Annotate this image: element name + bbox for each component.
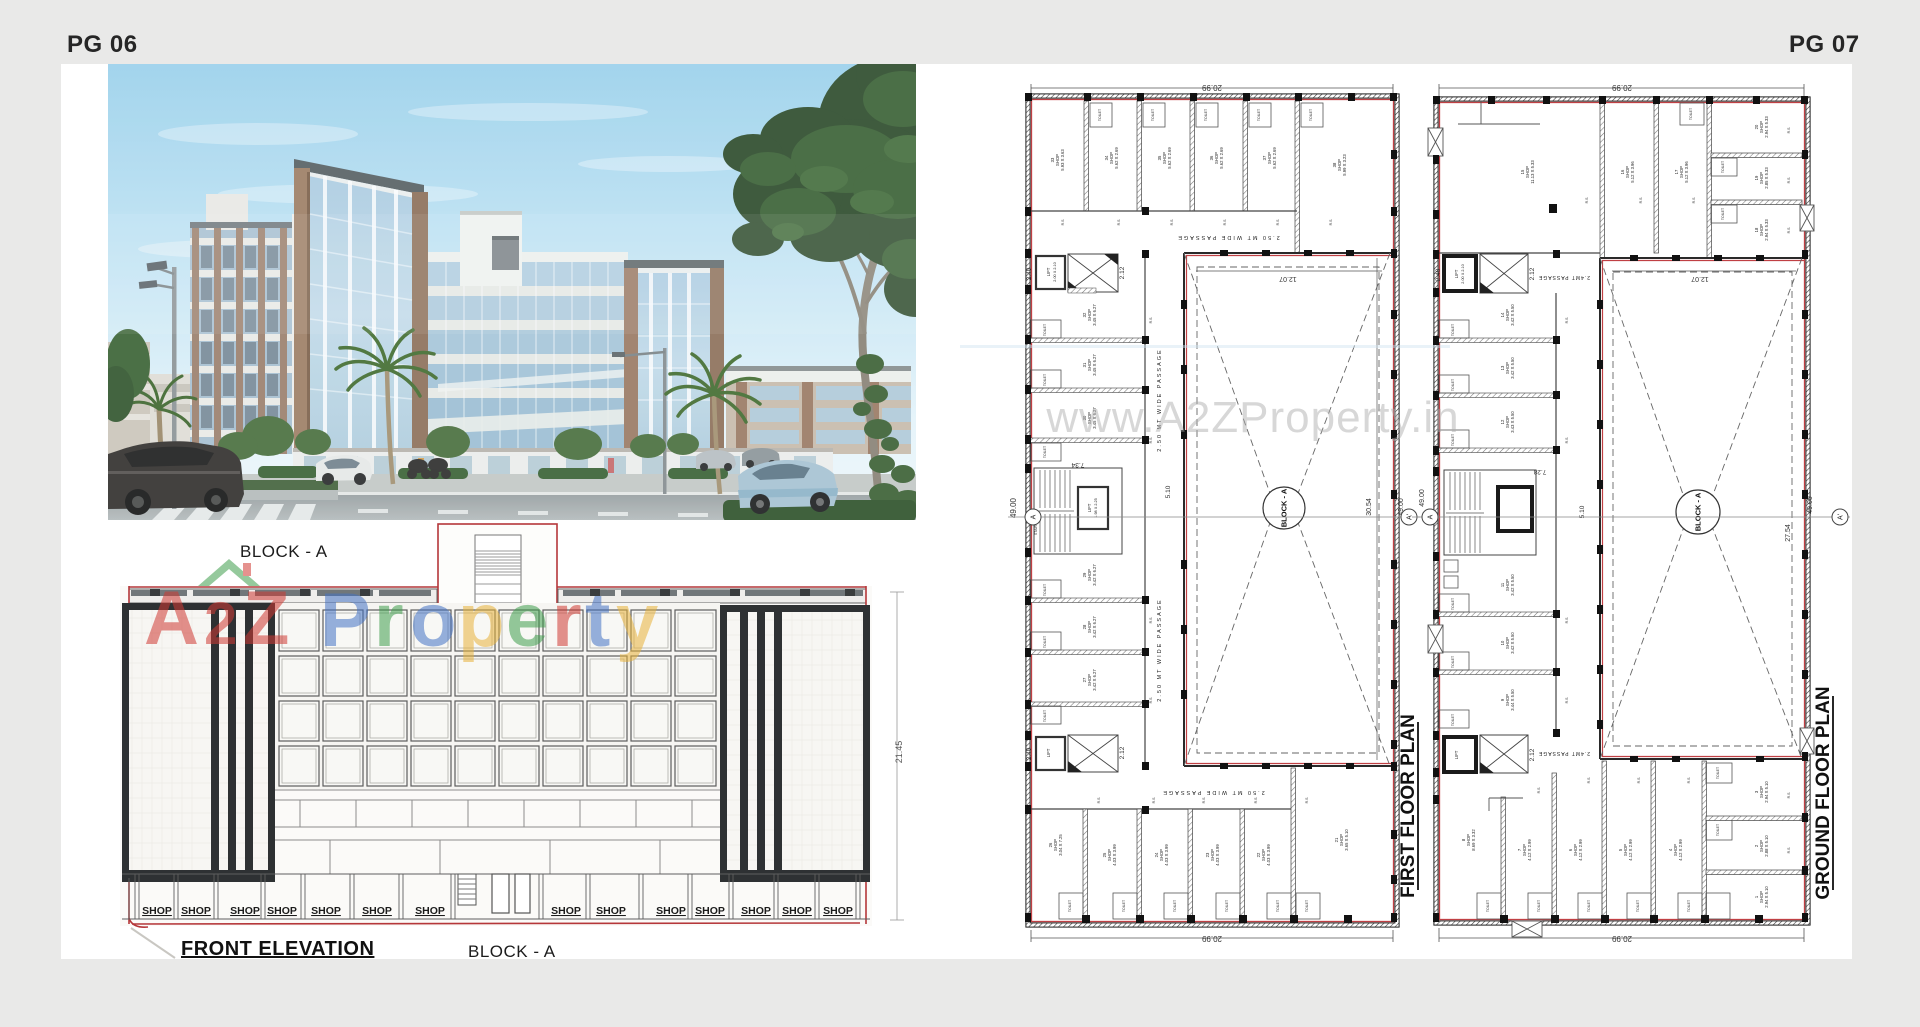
svg-text:3.42 X 5.50: 3.42 X 5.50 bbox=[1510, 632, 1515, 654]
svg-text:2.4MT PASSAGE: 2.4MT PASSAGE bbox=[1538, 750, 1590, 756]
svg-text:5.62 X 2.69: 5.62 X 2.69 bbox=[1114, 147, 1119, 169]
svg-text:R.S.: R.S. bbox=[1202, 797, 1206, 804]
svg-text:30.54: 30.54 bbox=[1366, 498, 1373, 516]
svg-text:SHOP: SHOP bbox=[551, 905, 581, 917]
svg-text:SHOP: SHOP bbox=[311, 905, 341, 917]
svg-text:LIFT: LIFT bbox=[1454, 269, 1459, 278]
svg-text:FRONT ELEVATION: FRONT ELEVATION bbox=[181, 938, 374, 960]
svg-text:www.A2ZProperty.in: www.A2ZProperty.in bbox=[1045, 393, 1459, 442]
svg-text:R.S.: R.S. bbox=[1149, 317, 1153, 324]
svg-text:STAIR: STAIR bbox=[1034, 525, 1038, 536]
svg-text:4.03 X 3.99: 4.03 X 3.99 bbox=[1215, 844, 1220, 866]
svg-text:TOILET: TOILET bbox=[1043, 323, 1047, 336]
svg-text:12.07: 12.07 bbox=[1691, 275, 1709, 282]
svg-text:4.03 X 3.99: 4.03 X 3.99 bbox=[1112, 844, 1117, 866]
svg-text:R.S.: R.S. bbox=[1787, 792, 1791, 799]
svg-text:R.S.: R.S. bbox=[1565, 617, 1569, 624]
svg-text:R.S.: R.S. bbox=[1787, 847, 1791, 854]
svg-text:BLOCK - A: BLOCK - A bbox=[1694, 492, 1703, 531]
svg-text:TOILET: TOILET bbox=[1721, 160, 1725, 173]
svg-text:FIRST FLOOR PLAN: FIRST FLOOR PLAN bbox=[1398, 714, 1419, 898]
svg-text:R.S.: R.S. bbox=[1152, 797, 1156, 804]
svg-text:TOILET: TOILET bbox=[1486, 899, 1490, 912]
svg-text:TOILET: TOILET bbox=[1276, 899, 1280, 912]
svg-text:R.S.: R.S. bbox=[1687, 777, 1691, 784]
svg-text:2.12: 2.12 bbox=[1119, 746, 1126, 759]
svg-text:5.10: 5.10 bbox=[1579, 505, 1586, 518]
svg-text:y: y bbox=[616, 578, 658, 663]
svg-text:3.42 X 5.50: 3.42 X 5.50 bbox=[1510, 304, 1515, 326]
svg-text:5.12 X 3.96: 5.12 X 3.96 bbox=[1684, 161, 1689, 183]
svg-text:R.S.: R.S. bbox=[1565, 437, 1569, 444]
svg-text:TOILET: TOILET bbox=[1068, 899, 1072, 912]
svg-text:TOILET: TOILET bbox=[1043, 445, 1047, 458]
svg-text:3.65 X 5.10: 3.65 X 5.10 bbox=[1344, 829, 1349, 851]
svg-text:A: A bbox=[144, 576, 199, 661]
svg-text:2.12: 2.12 bbox=[1529, 267, 1536, 280]
svg-text:3.45 X 6.27: 3.45 X 6.27 bbox=[1092, 354, 1097, 376]
svg-text:8.69 X 3.32: 8.69 X 3.32 bbox=[1471, 829, 1476, 851]
svg-text:TOILET: TOILET bbox=[1098, 108, 1102, 121]
svg-text:r: r bbox=[374, 578, 404, 663]
svg-text:TOILET: TOILET bbox=[1151, 108, 1155, 121]
svg-text:TOILET: TOILET bbox=[1043, 373, 1047, 386]
svg-text:LIFT: LIFT bbox=[1046, 267, 1051, 276]
svg-text:r: r bbox=[552, 578, 582, 663]
svg-text:3.42 X 5.50: 3.42 X 5.50 bbox=[1510, 357, 1515, 379]
svg-text:2.94 X 5.10: 2.94 X 5.10 bbox=[1764, 886, 1769, 908]
svg-text:R.S.: R.S. bbox=[1149, 697, 1153, 704]
svg-text:R.S.: R.S. bbox=[1565, 697, 1569, 704]
svg-text:49.00: 49.00 bbox=[1009, 497, 1018, 518]
svg-text:4.12 X 2.99: 4.12 X 2.99 bbox=[1527, 839, 1532, 861]
svg-text:4.03 X 3.99: 4.03 X 3.99 bbox=[1164, 844, 1169, 866]
svg-text:SHOP: SHOP bbox=[823, 905, 853, 917]
svg-text:3.43 X 5.50: 3.43 X 5.50 bbox=[1510, 411, 1515, 433]
svg-text:R.S.: R.S. bbox=[1276, 219, 1280, 226]
svg-text:t: t bbox=[585, 578, 610, 663]
svg-text:2.50 MT WIDE PASSAGE: 2.50 MT WIDE PASSAGE bbox=[1176, 234, 1279, 240]
svg-text:SHOP: SHOP bbox=[415, 905, 445, 917]
svg-text:A: A bbox=[1428, 514, 1435, 519]
svg-text:2.94 X 5.33: 2.94 X 5.33 bbox=[1764, 219, 1769, 241]
svg-text:TOILET: TOILET bbox=[1716, 823, 1720, 836]
svg-text:SHOP: SHOP bbox=[656, 905, 686, 917]
svg-text:R.S.: R.S. bbox=[1170, 219, 1174, 226]
svg-text:3.42 X 5.50: 3.42 X 5.50 bbox=[1510, 574, 1515, 596]
svg-text:TOILET: TOILET bbox=[1451, 378, 1455, 391]
svg-text:TOILET: TOILET bbox=[1305, 899, 1309, 912]
svg-text:SHOP: SHOP bbox=[181, 905, 211, 917]
svg-text:2.12: 2.12 bbox=[1119, 266, 1126, 279]
svg-text:e: e bbox=[506, 578, 548, 663]
svg-text:4.12 X 2.99: 4.12 X 2.99 bbox=[1678, 839, 1683, 861]
svg-text:R.S.: R.S. bbox=[1305, 797, 1309, 804]
svg-text:o: o bbox=[410, 578, 456, 663]
svg-text:R.S.: R.S. bbox=[1097, 797, 1101, 804]
svg-text:49.00: 49.00 bbox=[1419, 489, 1426, 507]
svg-text:2.94 X 5.33: 2.94 X 5.33 bbox=[1764, 116, 1769, 138]
svg-text:2.12: 2.12 bbox=[1529, 748, 1536, 761]
svg-text:7.28: 7.28 bbox=[1533, 468, 1546, 475]
svg-text:BLOCK - A: BLOCK - A bbox=[468, 942, 556, 961]
svg-text:R.S.: R.S. bbox=[1787, 127, 1791, 134]
svg-text:5.62 X 2.69: 5.62 X 2.69 bbox=[1219, 147, 1224, 169]
svg-text:5.62 X 2.69: 5.62 X 2.69 bbox=[1272, 147, 1277, 169]
svg-text:49.00: 49.00 bbox=[1807, 496, 1814, 514]
svg-text:4.12 X 2.99: 4.12 X 2.99 bbox=[1628, 839, 1633, 861]
svg-text:3.42 X 6.27: 3.42 X 6.27 bbox=[1092, 564, 1097, 586]
svg-text:2.40: 2.40 bbox=[1435, 268, 1442, 281]
svg-text:SHOP: SHOP bbox=[741, 905, 771, 917]
svg-text:2: 2 bbox=[204, 590, 237, 657]
svg-text:LIFT: LIFT bbox=[1046, 748, 1051, 757]
svg-text:20.99: 20.99 bbox=[1201, 934, 1222, 943]
svg-text:4.03 X 3.99: 4.03 X 3.99 bbox=[1266, 844, 1271, 866]
svg-text:TOILET: TOILET bbox=[1173, 899, 1177, 912]
svg-text:SHOP: SHOP bbox=[267, 905, 297, 917]
svg-text:20.99: 20.99 bbox=[1611, 83, 1632, 92]
svg-text:TOILET: TOILET bbox=[1587, 899, 1591, 912]
svg-text:TOILET: TOILET bbox=[1451, 597, 1455, 610]
svg-text:R.S.: R.S. bbox=[1637, 777, 1641, 784]
svg-text:TOILET: TOILET bbox=[1257, 108, 1261, 121]
svg-text:20.99: 20.99 bbox=[1611, 934, 1632, 943]
svg-text:TOILET: TOILET bbox=[1122, 899, 1126, 912]
svg-text:Z: Z bbox=[243, 576, 289, 661]
svg-text:R.S.: R.S. bbox=[1692, 197, 1696, 204]
svg-text:2.50 MT WIDE PASSAGE: 2.50 MT WIDE PASSAGE bbox=[1161, 789, 1264, 795]
svg-text:R.S.: R.S. bbox=[1223, 219, 1227, 226]
svg-text:2.85 X 5.33: 2.85 X 5.33 bbox=[1764, 167, 1769, 189]
svg-text:5.62 X 2.69: 5.62 X 2.69 bbox=[1167, 147, 1172, 169]
svg-text:R.S.: R.S. bbox=[1061, 219, 1065, 226]
svg-text:TOILET: TOILET bbox=[1537, 899, 1541, 912]
svg-text:GROUND FLOOR PLAN: GROUND FLOOR PLAN bbox=[1813, 686, 1834, 899]
svg-text:27.54: 27.54 bbox=[1785, 524, 1792, 542]
svg-text:2.40: 2.40 bbox=[1026, 747, 1033, 760]
svg-text:R.S.: R.S. bbox=[1149, 617, 1153, 624]
svg-text:TOILET: TOILET bbox=[1225, 899, 1229, 912]
svg-text:TOILET: TOILET bbox=[1043, 709, 1047, 722]
svg-text:2.00 X 2.10: 2.00 X 2.10 bbox=[1461, 264, 1465, 283]
svg-text:3.44 X 5.50: 3.44 X 5.50 bbox=[1510, 689, 1515, 711]
svg-text:3.04 X 7.25: 3.04 X 7.25 bbox=[1058, 834, 1063, 856]
svg-text:TOILET: TOILET bbox=[1687, 899, 1691, 912]
svg-text:3.42 X 6.27: 3.42 X 6.27 bbox=[1092, 669, 1097, 691]
svg-text:TOILET: TOILET bbox=[1451, 655, 1455, 668]
svg-text:R.S.: R.S. bbox=[1787, 177, 1791, 184]
svg-text:3.42 X 6.27: 3.42 X 6.27 bbox=[1092, 616, 1097, 638]
svg-text:R.S.: R.S. bbox=[1117, 219, 1121, 226]
svg-text:R.S.: R.S. bbox=[1639, 197, 1643, 204]
svg-text:5.10: 5.10 bbox=[1165, 485, 1172, 498]
svg-text:TOILET: TOILET bbox=[1716, 766, 1720, 779]
svg-text:3.45 X 6.27: 3.45 X 6.27 bbox=[1092, 304, 1097, 326]
svg-text:TOILET: TOILET bbox=[1721, 207, 1725, 220]
svg-text:R.S.: R.S. bbox=[1787, 227, 1791, 234]
svg-text:TOILET: TOILET bbox=[1309, 108, 1313, 121]
svg-text:R.S.: R.S. bbox=[1585, 197, 1589, 204]
svg-text:BLOCK - A: BLOCK - A bbox=[1280, 488, 1289, 527]
svg-text:LIFT: LIFT bbox=[1454, 750, 1459, 759]
svg-text:2.88 X 5.10: 2.88 X 5.10 bbox=[1764, 835, 1769, 857]
svg-text:21.45: 21.45 bbox=[894, 741, 904, 764]
svg-text:5.99 X 3.23: 5.99 X 3.23 bbox=[1342, 154, 1347, 176]
svg-text:20.99: 20.99 bbox=[1201, 83, 1222, 92]
svg-text:TOILET: TOILET bbox=[1043, 583, 1047, 596]
svg-text:A': A' bbox=[1838, 514, 1845, 520]
svg-text:SHOP: SHOP bbox=[596, 905, 626, 917]
svg-text:5.93 X 3.63: 5.93 X 3.63 bbox=[1060, 149, 1065, 171]
svg-text:2.50 MT WIDE PASSAGE: 2.50 MT WIDE PASSAGE bbox=[1157, 598, 1163, 701]
svg-text:SHOP: SHOP bbox=[362, 905, 392, 917]
svg-text:TOILET: TOILET bbox=[1689, 107, 1693, 120]
svg-text:SHOP: SHOP bbox=[142, 905, 172, 917]
svg-text:P: P bbox=[320, 578, 371, 663]
svg-text:2.00 X 2.10: 2.00 X 2.10 bbox=[1053, 262, 1057, 281]
svg-text:R.S.: R.S. bbox=[1537, 787, 1541, 794]
svg-text:5.12 X 3.96: 5.12 X 3.96 bbox=[1630, 161, 1635, 183]
svg-text:LIFT: LIFT bbox=[1087, 503, 1092, 512]
svg-text:R.S.: R.S. bbox=[1329, 219, 1333, 226]
svg-text:2.4MT PASSAGE: 2.4MT PASSAGE bbox=[1538, 274, 1590, 280]
svg-text:2.40: 2.40 bbox=[1026, 267, 1033, 280]
svg-text:11.13 X 5.33: 11.13 X 5.33 bbox=[1530, 160, 1535, 184]
svg-text:R.S.: R.S. bbox=[1587, 777, 1591, 784]
svg-text:TOILET: TOILET bbox=[1451, 323, 1455, 336]
svg-text:TOILET: TOILET bbox=[1043, 635, 1047, 648]
svg-text:A: A bbox=[1031, 514, 1038, 519]
svg-text:SHOP: SHOP bbox=[782, 905, 812, 917]
svg-text:2.94 X 5.10: 2.94 X 5.10 bbox=[1764, 781, 1769, 803]
svg-text:1.98 X 2.25: 1.98 X 2.25 bbox=[1094, 498, 1098, 517]
svg-text:SHOP: SHOP bbox=[230, 905, 260, 917]
svg-text:R.S.: R.S. bbox=[1254, 797, 1258, 804]
svg-text:TOILET: TOILET bbox=[1204, 108, 1208, 121]
svg-text:4.12 X 2.99: 4.12 X 2.99 bbox=[1578, 839, 1583, 861]
svg-text:LIFT: LIFT bbox=[1509, 505, 1514, 514]
svg-text:12.07: 12.07 bbox=[1279, 275, 1297, 282]
svg-text:BLOCK - A: BLOCK - A bbox=[240, 542, 328, 561]
svg-text:R.S.: R.S. bbox=[1565, 317, 1569, 324]
svg-text:SHOP: SHOP bbox=[695, 905, 725, 917]
svg-text:7.34: 7.34 bbox=[1071, 461, 1084, 468]
svg-text:p: p bbox=[458, 578, 504, 663]
svg-text:TOILET: TOILET bbox=[1636, 899, 1640, 912]
svg-text:TOILET: TOILET bbox=[1451, 713, 1455, 726]
